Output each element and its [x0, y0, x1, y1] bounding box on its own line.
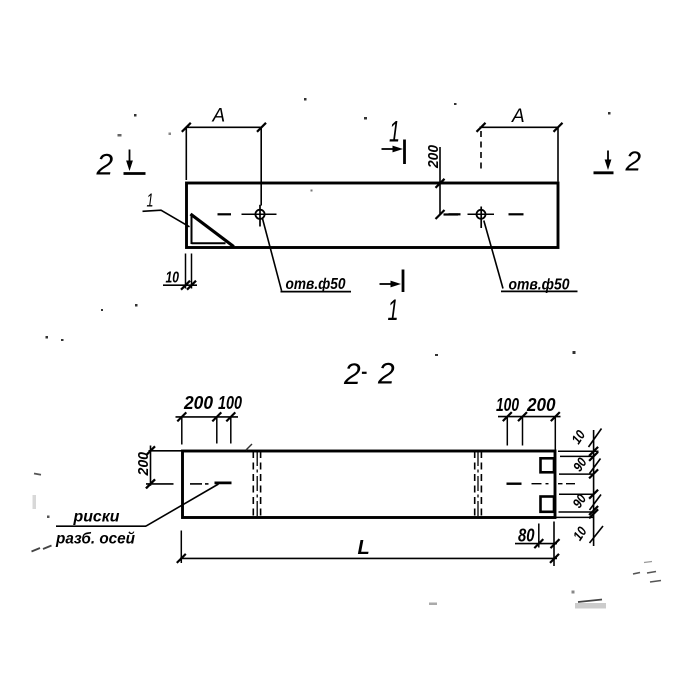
svg-text:A: A [511, 106, 525, 127]
svg-text:200: 200 [135, 451, 152, 476]
svg-text:отв.ф50: отв.ф50 [286, 276, 346, 293]
svg-text:200: 200 [183, 393, 213, 413]
svg-text:2: 2 [625, 146, 642, 177]
svg-text:1: 1 [389, 116, 400, 149]
svg-text:отв.ф50: отв.ф50 [509, 277, 570, 294]
svg-text:100: 100 [218, 393, 242, 413]
svg-text:риски: риски [72, 509, 120, 526]
svg-text:100: 100 [496, 395, 519, 415]
svg-text:80: 80 [518, 526, 535, 546]
svg-text:разб. осей: разб. осей [55, 531, 136, 548]
svg-text:2: 2 [377, 358, 395, 391]
svg-text:10: 10 [166, 270, 180, 287]
svg-text:200: 200 [425, 144, 442, 169]
svg-text:2: 2 [343, 358, 361, 391]
svg-text:1: 1 [388, 294, 399, 327]
svg-text:1: 1 [147, 191, 154, 211]
svg-text:A: A [212, 106, 226, 127]
svg-text:2: 2 [96, 149, 114, 182]
svg-text:200: 200 [526, 395, 555, 415]
svg-text:L: L [358, 537, 370, 559]
